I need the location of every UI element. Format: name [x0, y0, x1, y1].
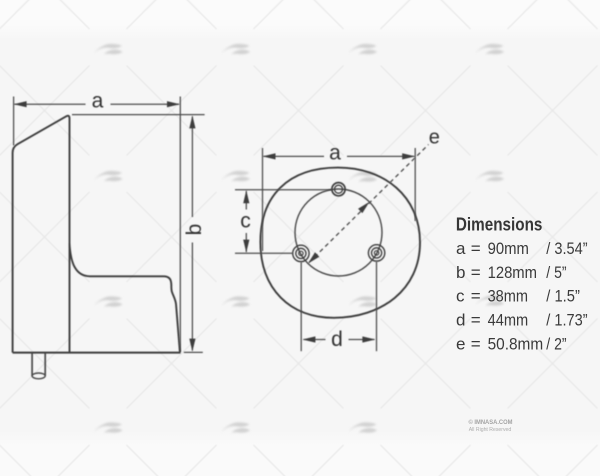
svg-text:=: = [471, 287, 481, 306]
svg-text:e: e [429, 127, 440, 149]
svg-text:d: d [331, 328, 343, 351]
svg-text:a: a [92, 90, 104, 113]
svg-text:/ 1.5”: / 1.5” [546, 287, 580, 306]
svg-text:b: b [183, 224, 206, 236]
svg-text:d: d [456, 311, 465, 330]
svg-text:90mm: 90mm [488, 239, 529, 258]
svg-text:© IMNASA.COM: © IMNASA.COM [469, 418, 513, 426]
svg-text:50.8mm: 50.8mm [488, 334, 544, 353]
svg-text:c: c [456, 287, 465, 306]
svg-text:=: = [471, 311, 481, 330]
svg-text:/ 2”: / 2” [546, 334, 567, 353]
svg-text:a: a [456, 239, 466, 258]
svg-text:c: c [240, 210, 251, 233]
svg-text:b: b [456, 263, 465, 282]
svg-text:/ 3.54”: / 3.54” [546, 239, 588, 258]
svg-text:128mm: 128mm [488, 263, 537, 282]
svg-text:All Right Reserved: All Right Reserved [469, 427, 512, 433]
svg-text:Dimensions: Dimensions [456, 215, 543, 235]
svg-text:a: a [329, 142, 341, 165]
svg-text:/ 1.73”: / 1.73” [546, 311, 588, 330]
svg-text:/ 5”: / 5” [546, 263, 567, 282]
svg-text:e: e [456, 334, 465, 353]
svg-text:=: = [471, 263, 481, 282]
svg-text:=: = [471, 334, 481, 353]
svg-text:44mm: 44mm [488, 311, 529, 330]
svg-text:38mm: 38mm [488, 287, 528, 306]
svg-text:=: = [471, 239, 481, 258]
